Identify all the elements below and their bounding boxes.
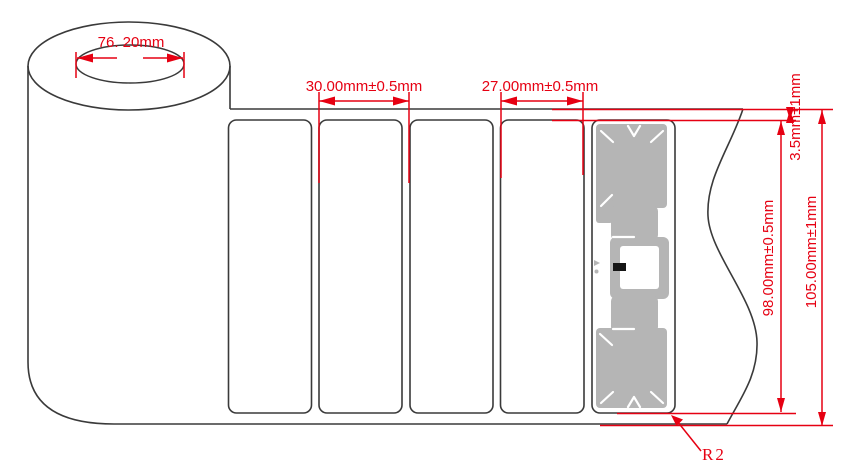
corner-radius-value: R2 — [702, 445, 726, 464]
label-4 — [501, 120, 585, 413]
core-dim-arrow-right — [167, 54, 183, 63]
label-height-arrow-up — [777, 121, 785, 135]
liner-width-arrow-down — [818, 412, 826, 426]
pitch-dim-arrow-right — [393, 97, 409, 106]
corner-radius-callout: R2 — [671, 415, 726, 464]
label-2 — [319, 120, 402, 413]
inlay-bottom-connector — [611, 296, 658, 332]
top-margin-dimension: 3.5mm±1mm — [786, 73, 804, 160]
inlay-chip — [613, 263, 626, 271]
inlay-registration-dot — [595, 270, 599, 274]
liner-width-dimension: 105.00mm±1mm — [803, 110, 826, 426]
label-pitch-value: 30.00mm±0.5mm — [306, 78, 423, 95]
label-height-arrow-down — [777, 398, 785, 412]
pitch-dim-arrow-left — [319, 97, 335, 106]
label-height-dimension: 98.00mm±0.5mm — [760, 121, 785, 412]
liner-width-arrow-up — [818, 110, 826, 124]
core-diameter-dimension: 76. 20mm — [76, 34, 184, 78]
dimension-drawing: 76. 20mm 30.00mm±0.5mm 27.00mm±0.5mm 3.5… — [0, 0, 864, 475]
label-3 — [410, 120, 493, 413]
core-dim-arrow-left — [77, 54, 93, 63]
core-diameter-value: 76. 20mm — [98, 34, 165, 51]
width-dim-arrow-left — [501, 97, 517, 106]
label-height-value: 98.00mm±0.5mm — [760, 200, 777, 317]
width-dim-arrow-right — [567, 97, 583, 106]
inlay-top-connector — [611, 206, 658, 240]
label-1 — [229, 120, 312, 413]
label-width-value: 27.00mm±0.5mm — [482, 78, 599, 95]
liner-width-value: 105.00mm±1mm — [803, 196, 820, 308]
strip-break-curve — [708, 109, 757, 424]
drawing-svg: 76. 20mm 30.00mm±0.5mm 27.00mm±0.5mm 3.5… — [0, 0, 864, 475]
top-margin-value: 3.5mm±1mm — [787, 73, 804, 160]
